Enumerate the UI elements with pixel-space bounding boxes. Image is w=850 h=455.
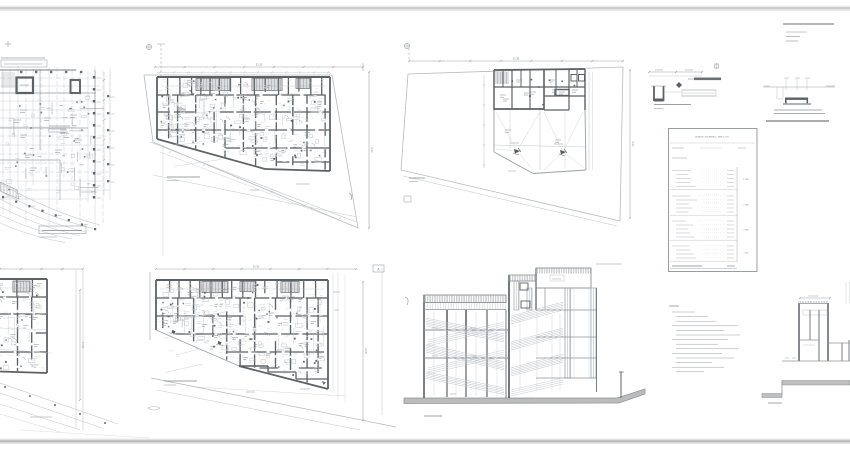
svg-text:31,30: 31,30 — [256, 62, 263, 66]
svg-text:31,30: 31,30 — [513, 56, 520, 60]
svg-text:24,50: 24,50 — [81, 342, 84, 349]
svg-text:9,90: 9,90 — [631, 142, 634, 147]
svg-text:1.PAV: 1.PAV — [743, 178, 749, 181]
svg-text:3.PAV: 3.PAV — [743, 229, 749, 232]
svg-text:COB.: COB. — [743, 253, 749, 255]
svg-text:2.PAV: 2.PAV — [743, 204, 749, 207]
svg-text:9,90: 9,90 — [370, 148, 373, 153]
svg-text:QUADRO DE AREAS - NBR 12721: QUADRO DE AREAS - NBR 12721 — [695, 136, 730, 139]
svg-text:31,30: 31,30 — [253, 264, 260, 268]
svg-text:24,50: 24,50 — [364, 348, 367, 355]
